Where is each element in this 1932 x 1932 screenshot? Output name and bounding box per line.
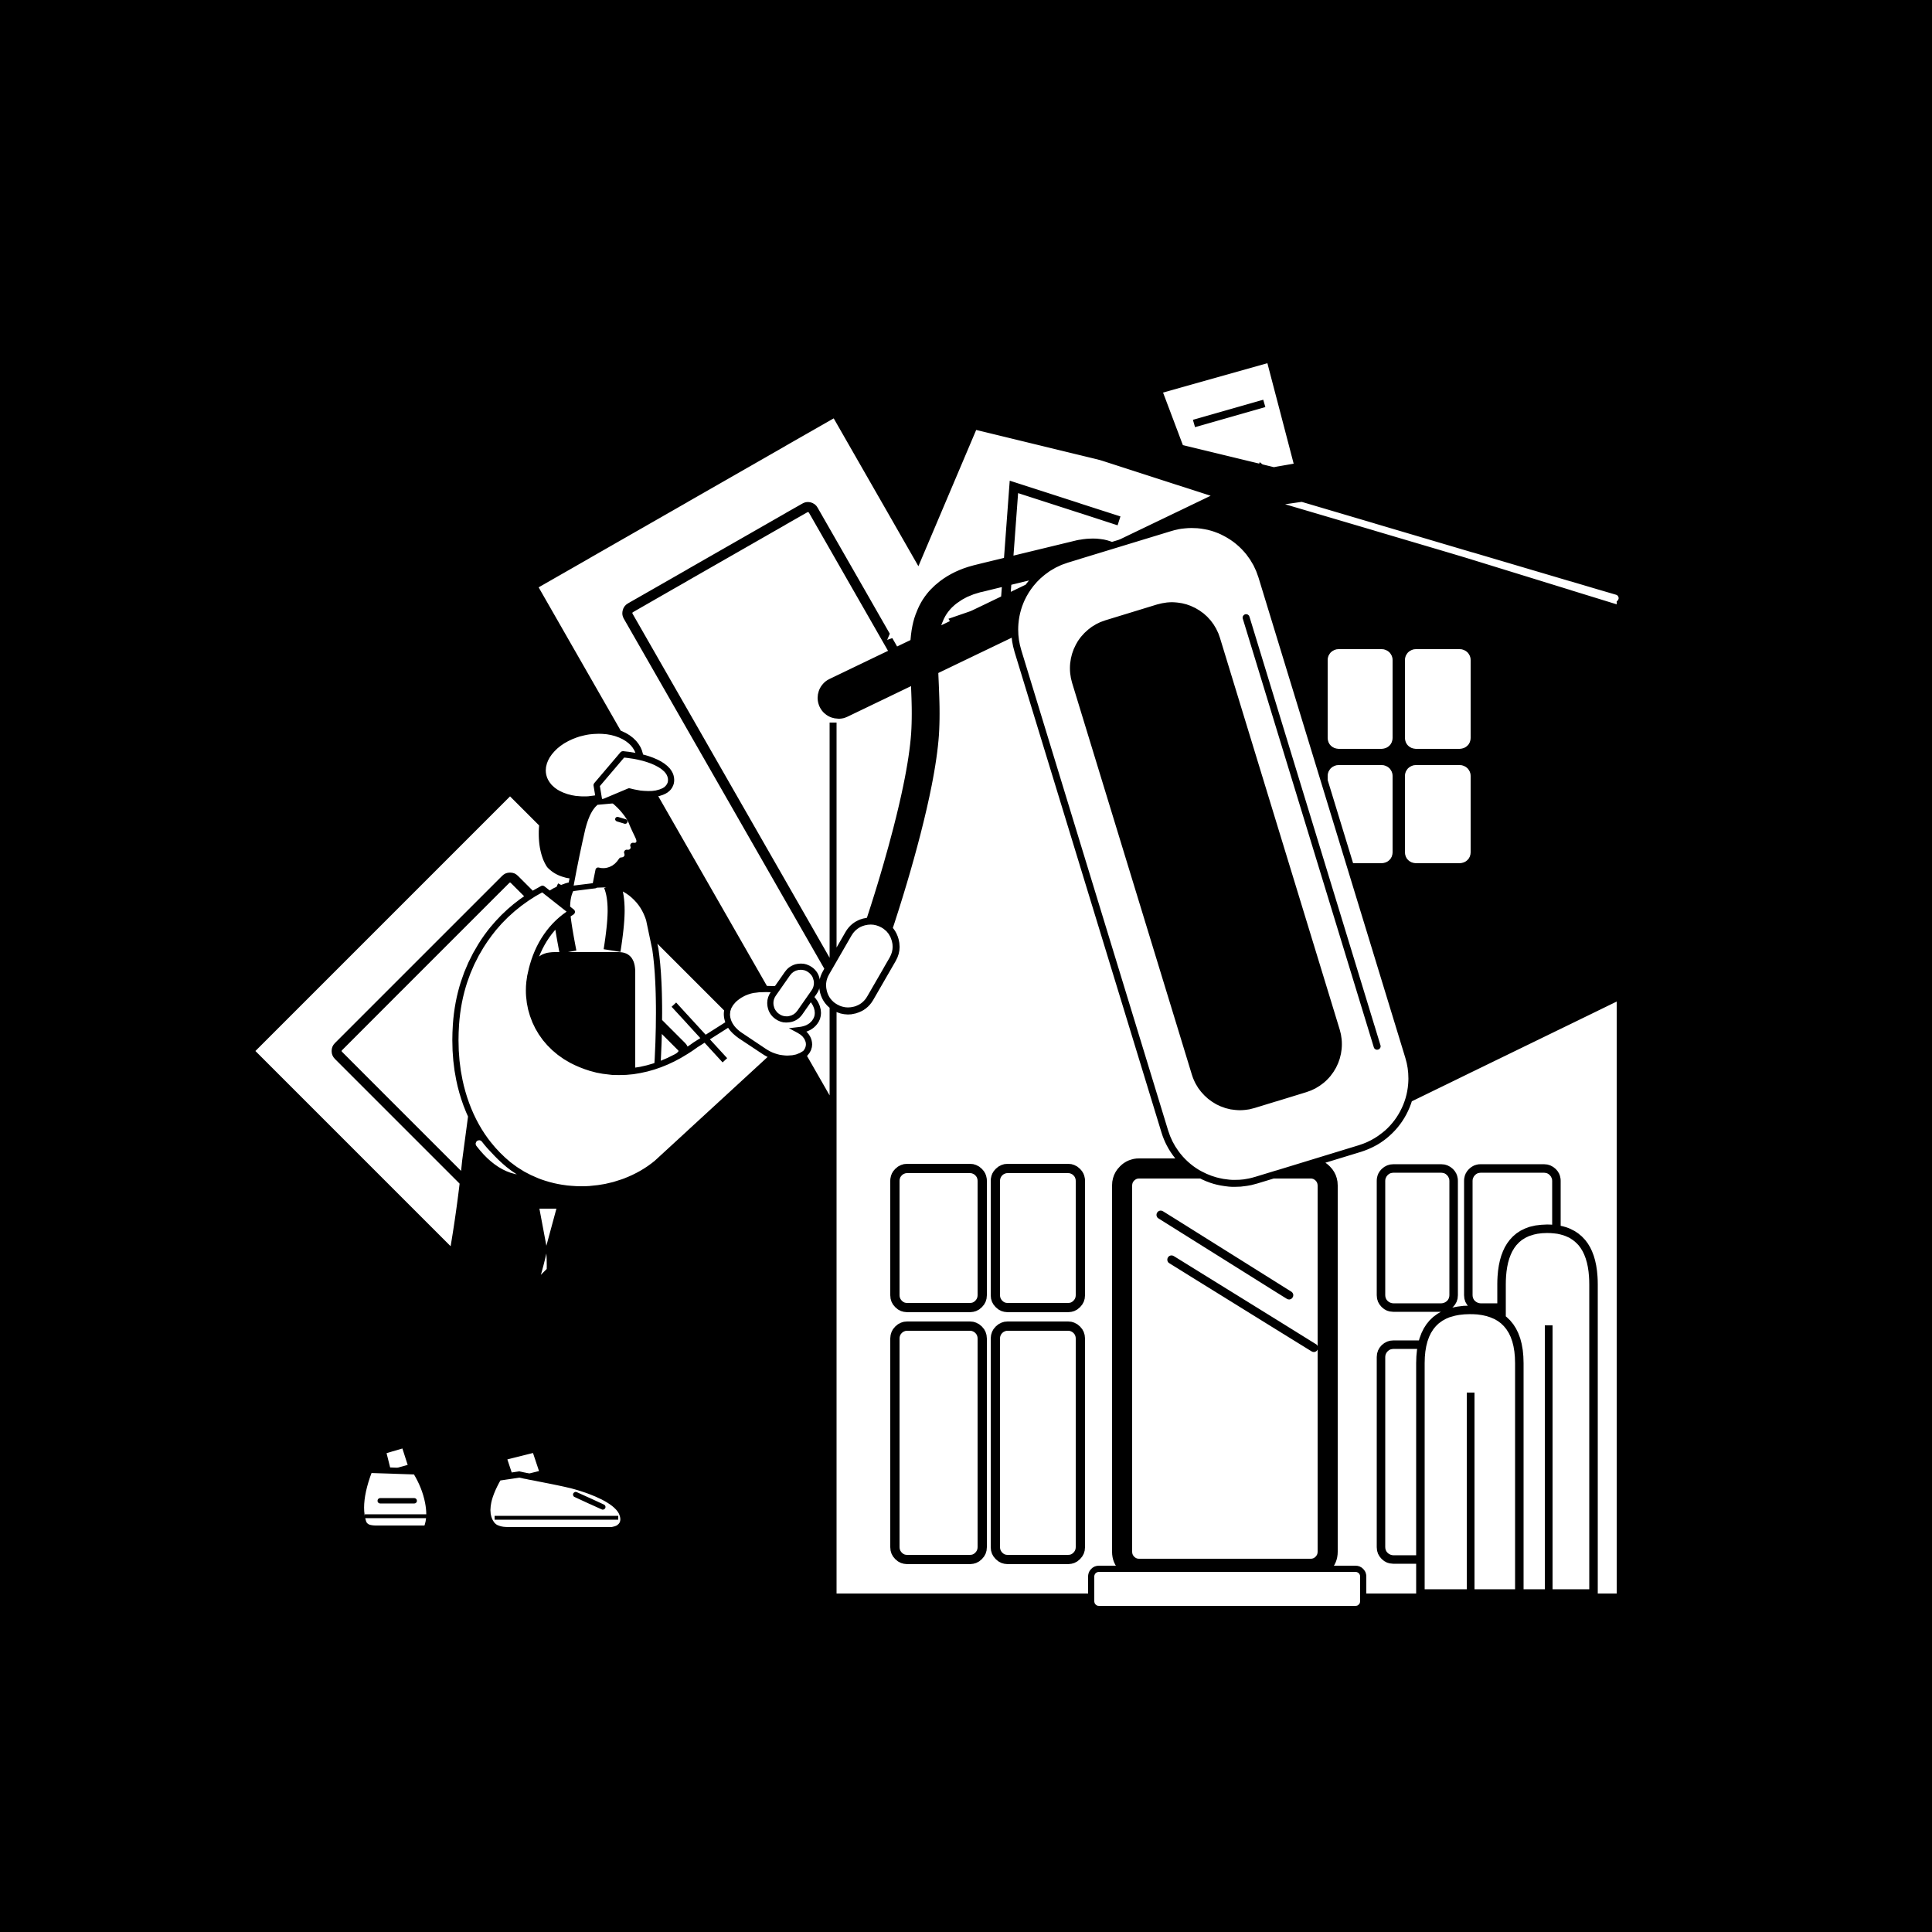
window-pane <box>995 1326 1080 1560</box>
attic-pane <box>1328 649 1393 749</box>
front-door <box>1091 1168 1363 1609</box>
attic-pane <box>1405 649 1471 749</box>
overall-strap <box>612 885 616 951</box>
window-pane <box>895 1326 982 1560</box>
illustration-canvas <box>0 0 1932 1932</box>
door-panel <box>1122 1168 1328 1569</box>
painter-eye <box>617 819 625 821</box>
door-step <box>1091 1569 1363 1609</box>
attic-pane <box>1405 765 1471 863</box>
window-pane <box>995 1168 1080 1308</box>
window-pane <box>895 1168 982 1308</box>
window-pane <box>1381 1168 1454 1308</box>
